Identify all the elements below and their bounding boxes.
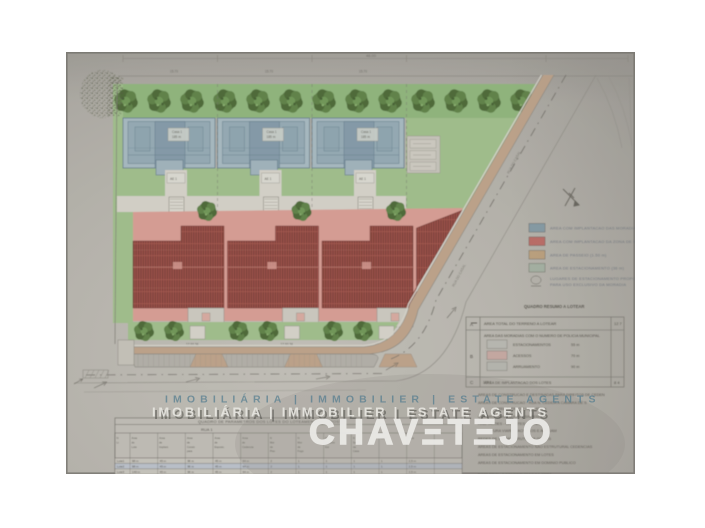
svg-text:CHAVΞTΞJO: CHAVΞTΞJO: [309, 412, 554, 452]
